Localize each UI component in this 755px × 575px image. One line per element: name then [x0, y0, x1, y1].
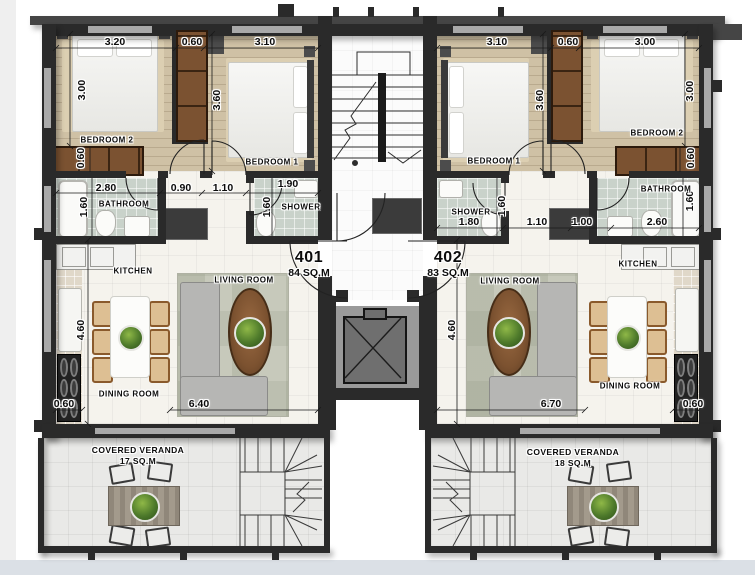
dim-wardrobe-401: 0.60 — [75, 148, 87, 168]
headboard — [307, 60, 314, 158]
dim-living-width-401: 6.40 — [189, 398, 209, 410]
pillow — [449, 66, 464, 108]
pillow — [293, 112, 308, 154]
plant — [615, 325, 641, 351]
post — [180, 553, 187, 560]
sliding-door — [520, 428, 660, 434]
appliance — [90, 247, 114, 267]
wall — [629, 171, 699, 178]
wall-veranda — [324, 438, 330, 553]
dim-hall-402: 1.10 — [527, 216, 547, 228]
wall-stub — [368, 7, 374, 17]
wall-stub — [712, 24, 742, 40]
dim-closet-width-402: 0.60 — [558, 36, 578, 48]
wall — [246, 171, 254, 183]
room-label-kitchen-401: KITCHEN — [113, 267, 152, 276]
burner — [70, 358, 78, 377]
dim-shower-depth-402: 1.60 — [496, 196, 508, 216]
hall-closet-401 — [160, 208, 208, 240]
floor-plan: 3.20 0.60 3.10 3.00 3.60 0.60 2.80 1.60 … — [0, 0, 755, 575]
nightstand — [440, 160, 451, 171]
appliance — [62, 247, 86, 267]
wall — [543, 171, 555, 178]
window — [453, 26, 523, 33]
dim-bed2-depth-401: 3.00 — [76, 80, 88, 100]
wall-stub — [407, 290, 419, 302]
dim-bath-depth-401: 1.60 — [78, 197, 90, 217]
burner — [677, 358, 685, 377]
wall-stub — [336, 290, 348, 302]
room-label-veranda-402: COVERED VERANDA — [527, 447, 619, 457]
dim-shower-width-401: 1.90 — [278, 178, 298, 190]
window — [44, 68, 51, 128]
sofa-402 — [489, 376, 577, 416]
dim-bed2-depth-402: 3.00 — [684, 81, 696, 101]
wall-stub — [34, 228, 42, 240]
plant — [493, 317, 525, 349]
dining-chair — [646, 329, 667, 355]
wall-stub — [413, 7, 419, 17]
headboard — [441, 60, 448, 158]
wall — [501, 171, 509, 183]
stove-401 — [57, 354, 81, 422]
wall — [589, 236, 699, 244]
room-label-bathroom-402: BATHROOM — [641, 185, 692, 194]
appliance — [671, 247, 695, 267]
wall-stub — [278, 4, 294, 17]
room-label-dining-401: DINING ROOM — [99, 390, 160, 399]
wall-veranda — [425, 546, 717, 553]
veranda-area-401: 17 SQ.M — [120, 456, 156, 466]
stove-402 — [674, 354, 698, 422]
window — [704, 260, 711, 352]
room-label-living-402: LIVING ROOM — [480, 277, 539, 286]
dim-bed1-width-401: 3.10 — [255, 36, 275, 48]
wall-shaft — [318, 296, 336, 430]
wall-stub — [498, 7, 504, 17]
wall-stub — [713, 228, 721, 240]
wall-stub — [713, 420, 721, 432]
dim-bath-width-402: 2.60 — [647, 216, 667, 228]
wall-core-left — [318, 276, 332, 298]
room-label-shower-402: SHOWER — [452, 208, 491, 217]
kitchen-sink-402 — [675, 288, 699, 352]
dim-living-height-401: 4.60 — [75, 320, 87, 340]
dim-wardrobe-402: 0.60 — [685, 148, 697, 168]
dim-bath-width-401: 2.80 — [96, 182, 116, 194]
room-label-bedroom2-402: BEDROOM 2 — [631, 129, 684, 138]
unit-number-402: 402 — [434, 249, 462, 267]
wall-stub — [34, 420, 42, 432]
dining-chair — [149, 329, 170, 355]
burner — [677, 379, 685, 398]
unit-area-402: 83 SQ.M — [427, 267, 468, 279]
veranda-area-402: 18 SQ.M — [555, 458, 591, 468]
post — [562, 553, 569, 560]
pillow — [449, 112, 464, 154]
dim-hall-b-401: 1.10 — [213, 182, 233, 194]
room-label-veranda-401: COVERED VERANDA — [92, 445, 184, 455]
wall — [246, 171, 318, 178]
wall — [246, 211, 254, 238]
dim-bed1-depth-402: 3.60 — [534, 90, 546, 110]
dim-bath-depth-402: 1.60 — [684, 191, 696, 211]
dim-hall-a-401: 0.90 — [171, 182, 191, 194]
dim-bed2-width-402: 3.00 — [635, 36, 655, 48]
room-label-bathroom-401: BATHROOM — [99, 200, 150, 209]
dim-living-width-402: 6.70 — [541, 398, 561, 410]
window — [704, 68, 711, 128]
sofa-401 — [180, 376, 268, 416]
sliding-door — [95, 428, 235, 434]
wall-stub — [713, 80, 722, 92]
wall-shaft — [419, 296, 437, 430]
pillow — [293, 66, 308, 108]
wall-veranda — [38, 546, 330, 553]
veranda-chair — [606, 460, 632, 482]
plant — [130, 492, 160, 522]
room-label-bedroom2-401: BEDROOM 2 — [81, 136, 134, 145]
burner — [60, 379, 68, 398]
dim-closet-402: 1.00 — [572, 216, 592, 228]
dim-bed1-width-402: 3.10 — [487, 36, 507, 48]
post — [654, 553, 661, 560]
wall-core-right — [423, 16, 437, 240]
page-bottom-band — [0, 560, 755, 575]
dim-shower-depth-401: 1.60 — [261, 197, 273, 217]
dining-chair — [149, 357, 170, 383]
page-left-strip — [0, 0, 16, 575]
burner — [70, 379, 78, 398]
wall-core-right — [423, 276, 437, 298]
nightstand — [304, 46, 315, 57]
room-label-bedroom1-402: BEDROOM 1 — [468, 157, 521, 166]
nightstand — [304, 160, 315, 171]
dining-chair — [646, 357, 667, 383]
burner — [687, 358, 695, 377]
dim-bed1-depth-401: 3.60 — [211, 90, 223, 110]
nightstand — [440, 46, 451, 57]
room-label-bedroom1-401: BEDROOM 1 — [246, 158, 299, 167]
window — [603, 26, 667, 33]
toilet-401 — [95, 210, 116, 237]
plant — [118, 325, 144, 351]
elevator-car — [343, 316, 407, 384]
wall-veranda — [425, 438, 431, 553]
wall-veranda — [38, 438, 44, 552]
post — [272, 553, 279, 560]
post — [88, 553, 95, 560]
window — [704, 186, 711, 232]
wall — [246, 236, 318, 244]
window — [44, 186, 51, 232]
window — [44, 260, 51, 352]
dining-chair — [646, 301, 667, 327]
post — [470, 553, 477, 560]
room-label-kitchen-402: KITCHEN — [618, 260, 657, 269]
dining-chair — [149, 301, 170, 327]
wall — [200, 171, 212, 178]
dim-living-height-402: 4.60 — [446, 320, 458, 340]
dim-closet-width-401: 0.60 — [182, 36, 202, 48]
plant — [234, 317, 266, 349]
sink-shower-402 — [439, 180, 463, 198]
lobby-duct — [372, 198, 422, 234]
room-label-living-401: LIVING ROOM — [214, 276, 273, 285]
room-label-shower-401: SHOWER — [282, 203, 321, 212]
sink-bathroom-401 — [124, 216, 150, 237]
elevator-door — [363, 308, 387, 320]
floor-stairwell — [332, 30, 423, 300]
dim-counter-402: 0.60 — [683, 398, 703, 410]
veranda-chair — [109, 524, 136, 547]
room-label-dining-402: DINING ROOM — [600, 382, 661, 391]
plant — [589, 492, 619, 522]
wall — [158, 171, 166, 238]
wall-stub — [333, 7, 339, 17]
wall-shaft — [336, 388, 419, 400]
sink-bathroom-402 — [607, 216, 633, 237]
wall — [437, 171, 509, 178]
window — [88, 26, 152, 33]
unit-number-401: 401 — [295, 249, 323, 267]
window — [232, 26, 302, 33]
dim-shower-width-402: 1.80 — [459, 216, 479, 228]
dim-bed2-width-401: 3.20 — [105, 36, 125, 48]
burner — [687, 379, 695, 398]
unit-area-401: 84 SQ.M — [288, 267, 329, 279]
wall — [56, 171, 126, 178]
dim-counter-401: 0.60 — [54, 398, 74, 410]
wall-veranda — [711, 438, 717, 552]
burner — [60, 358, 68, 377]
wall — [56, 236, 166, 244]
wall — [437, 236, 509, 244]
